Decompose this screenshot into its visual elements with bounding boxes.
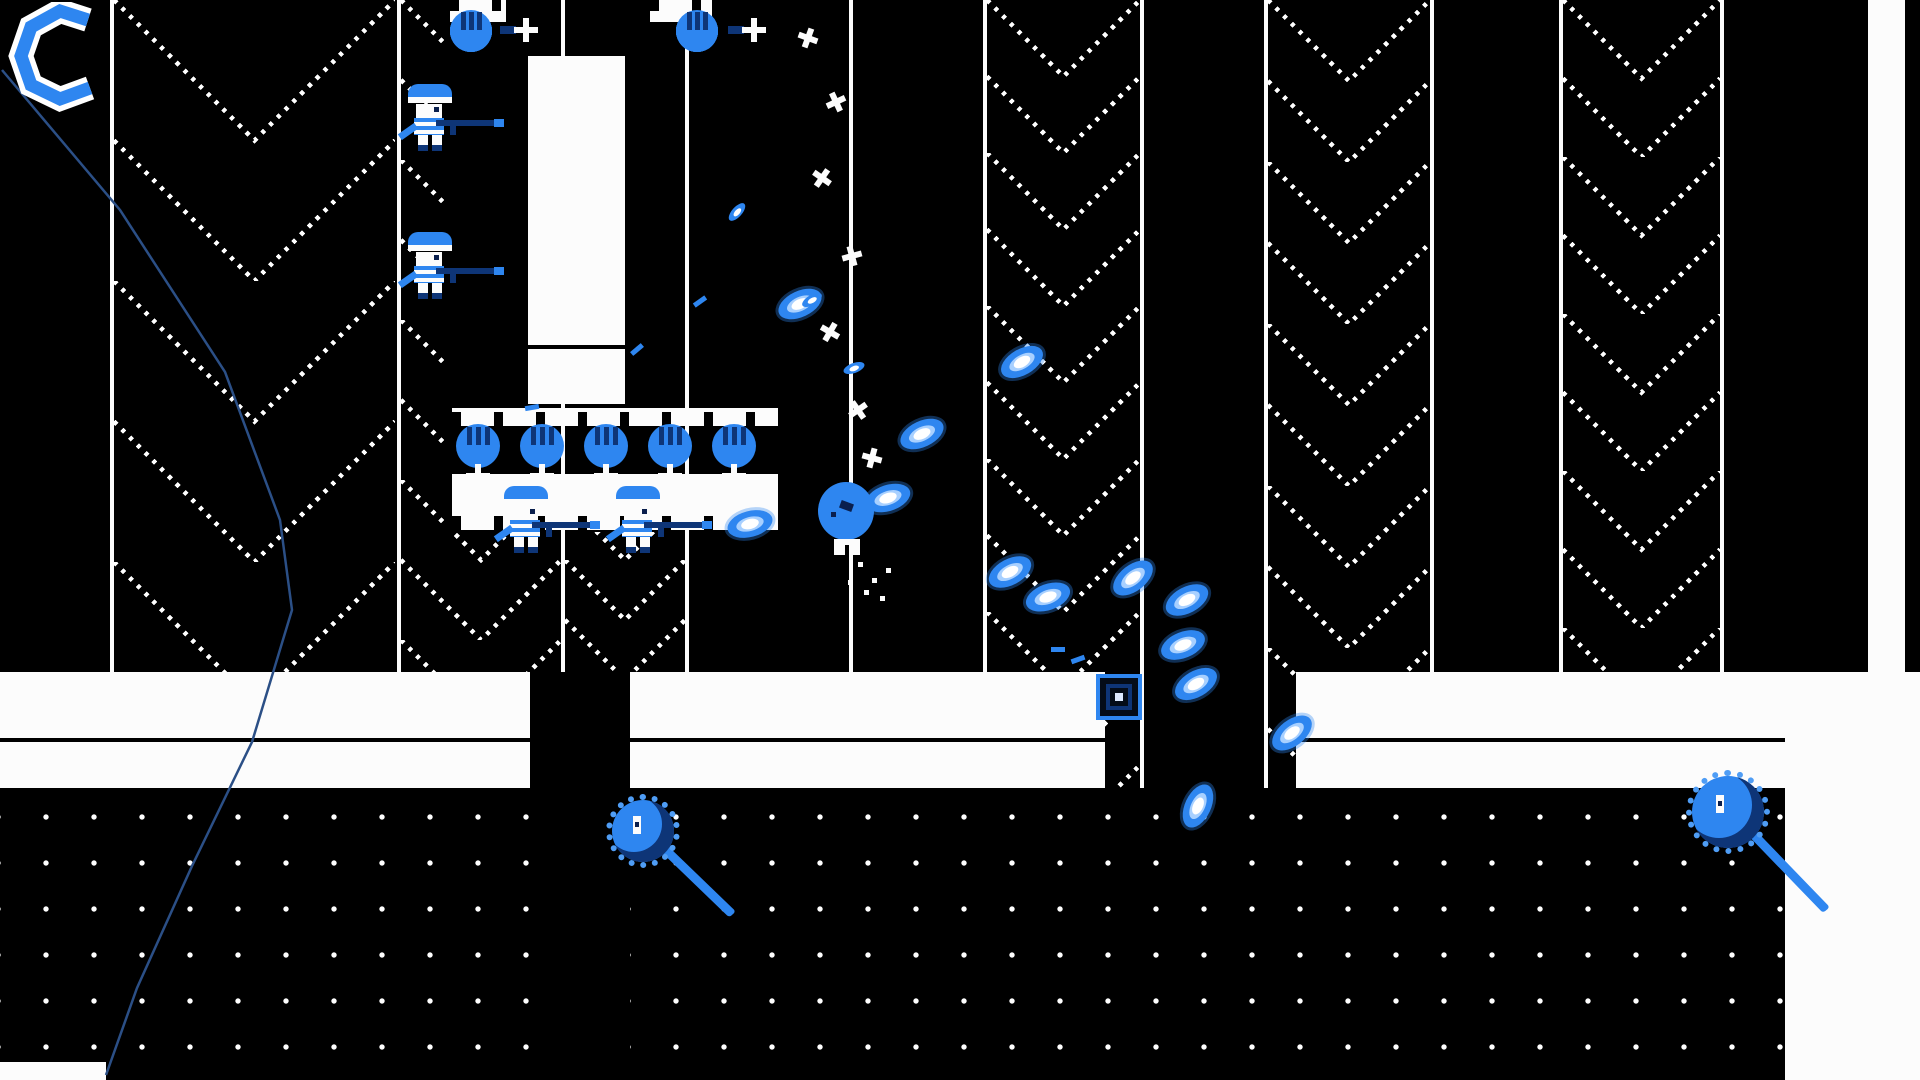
- hud-layer: [0, 0, 1920, 1080]
- game-viewport[interactable]: [0, 0, 1920, 1080]
- charge-ring-icon: [8, 2, 128, 122]
